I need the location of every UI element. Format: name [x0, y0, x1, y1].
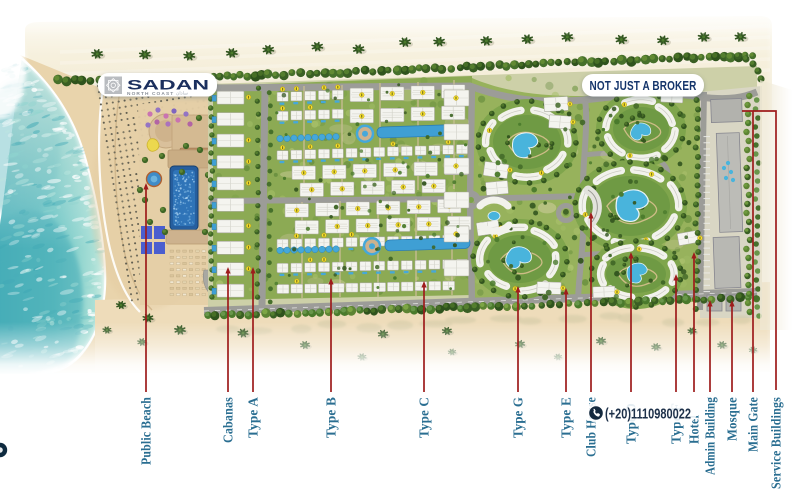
svg-text:Type E: Type E [559, 397, 574, 438]
svg-text:Public Beach: Public Beach [139, 397, 154, 465]
svg-text:SADAN: SADAN [127, 77, 209, 93]
svg-text:Type A: Type A [246, 397, 261, 438]
svg-text:NOT JUST A BROKER: NOT JUST A BROKER [590, 78, 697, 93]
svg-text:Type B: Type B [324, 397, 339, 438]
svg-text:NORTH COAST: NORTH COAST [127, 91, 174, 97]
svg-text:Cabanas: Cabanas [221, 397, 236, 443]
svg-text:Main Gate: Main Gate [746, 397, 761, 452]
svg-text:(+20)1110980022: (+20)1110980022 [605, 406, 691, 423]
svg-text:Admin Building: Admin Building [703, 397, 718, 475]
svg-text:Type G: Type G [511, 397, 526, 438]
svg-text:Type C: Type C [417, 397, 432, 438]
svg-text:Mosque: Mosque [725, 397, 740, 441]
svg-text:Service Buildings: Service Buildings [769, 397, 784, 489]
svg-text:سادان: سادان [176, 91, 188, 96]
